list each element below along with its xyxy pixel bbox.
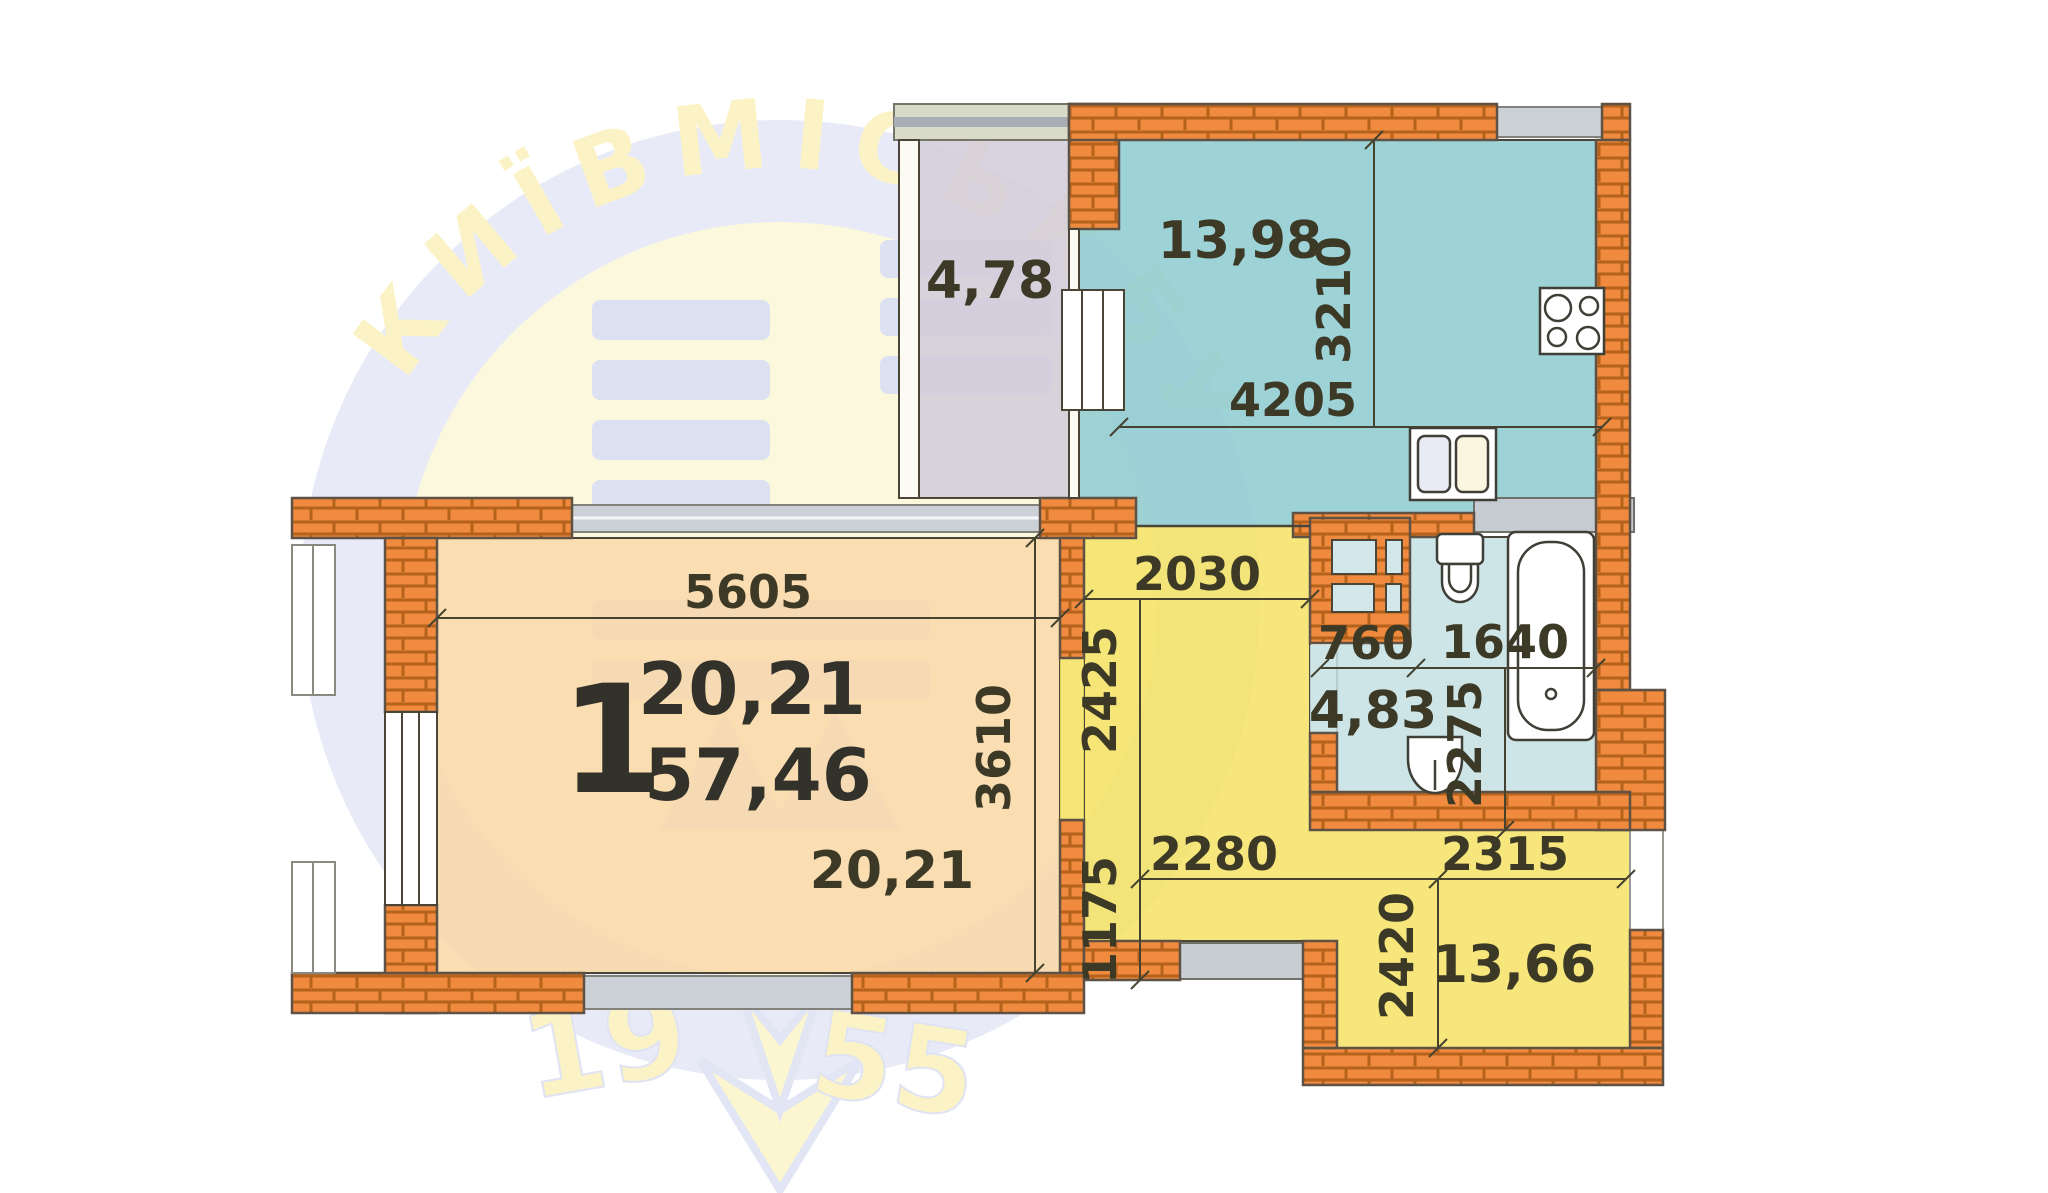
entrance-door	[1180, 943, 1303, 979]
floor-plan-svg: КИЇВМІСЬКБУД 19 55	[0, 0, 2048, 1193]
dim-4205: 4205	[1229, 373, 1357, 427]
room-bottom-area-label: 13,66	[1432, 935, 1596, 995]
wall-living-top-right	[1040, 498, 1136, 538]
wall-living-bottom-left	[292, 973, 584, 1013]
living-area-label: 20,21	[638, 647, 866, 731]
dim-1640: 1640	[1441, 615, 1569, 669]
wall-kitchen-left-b	[1069, 408, 1079, 498]
wall-kitchen-top-corner	[1602, 104, 1630, 140]
room-balcony	[919, 140, 1069, 498]
window-room-right	[1630, 830, 1663, 930]
balcony-area-label: 4,78	[926, 251, 1054, 311]
dim-3610: 3610	[967, 684, 1021, 812]
dim-2315: 2315	[1441, 827, 1569, 881]
dim-2425: 2425	[1073, 626, 1127, 754]
wall-kitchen-top	[1069, 104, 1497, 140]
bathroom-area-label: 4,83	[1309, 681, 1437, 741]
total-area-label: 57,46	[644, 733, 872, 817]
dim-3210: 3210	[1307, 236, 1361, 364]
window-living-left	[385, 712, 437, 905]
wall-room-bottom	[1303, 1048, 1663, 1085]
living-area-bottom-label: 20,21	[810, 841, 974, 901]
dim-2275: 2275	[1438, 680, 1492, 808]
wall-right	[1596, 140, 1630, 690]
stove-icon	[1540, 288, 1604, 354]
dim-5605: 5605	[684, 565, 812, 619]
wall-balcony-left	[899, 140, 919, 498]
dim-2420: 2420	[1370, 892, 1424, 1020]
dim-2030: 2030	[1133, 547, 1261, 601]
dim-1175: 1175	[1073, 856, 1127, 984]
window-living-bottom	[584, 976, 852, 1009]
kitchen-area-label: 13,98	[1158, 211, 1322, 271]
toilet-icon	[1437, 534, 1483, 602]
wall-living-top-left	[292, 498, 572, 538]
window-kitchen-top	[1497, 107, 1602, 137]
wall-room-right	[1630, 930, 1663, 1048]
balcony-door	[1062, 290, 1124, 410]
washer-sink-unit-icon	[1410, 428, 1496, 500]
floor-plan-page: КИЇВМІСЬКБУД 19 55	[0, 0, 2048, 1193]
wall-kitchen-left-a	[1069, 229, 1079, 292]
wall-bath-left-lower	[1310, 733, 1337, 792]
dim-2280: 2280	[1150, 827, 1278, 881]
wall-entrance-right	[1303, 941, 1337, 1048]
wall-living-bottom-right	[852, 973, 1084, 1013]
dim-760: 760	[1318, 616, 1414, 670]
